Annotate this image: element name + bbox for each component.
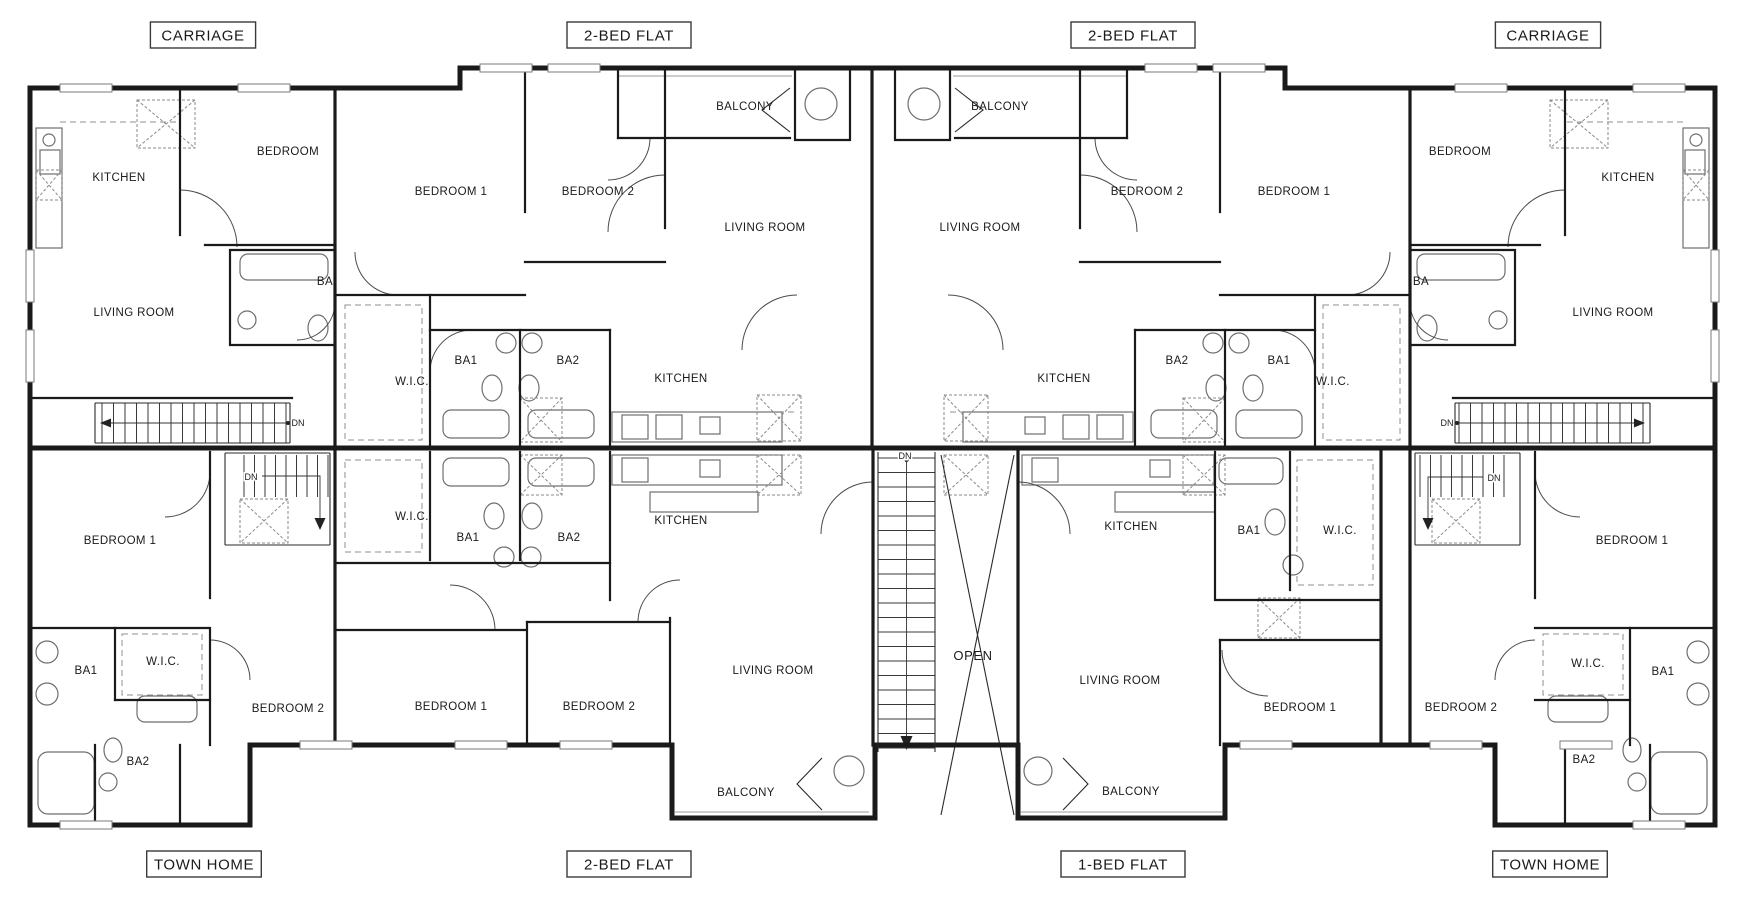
room-label: BALCONY [716,101,774,113]
unit-label: CARRIAGE [161,28,244,45]
room-label: LIVING ROOM [1079,675,1160,687]
dn-note: DN [245,472,258,482]
unit-label: TOWN HOME [154,857,254,874]
room-label: BEDROOM 1 [415,186,488,198]
room-label: BEDROOM 1 [1264,702,1337,714]
room-label: BALCONY [1102,786,1160,798]
room-label: BA [317,276,333,288]
unit-label: TOWN HOME [1500,857,1600,874]
room-label: KITCHEN [1104,521,1157,533]
room-label: BEDROOM 2 [563,701,636,713]
room-label: BA1 [1268,355,1291,367]
room-label: BEDROOM 1 [1258,186,1331,198]
room-label: W.I.C. [1571,658,1605,670]
room-label: W.I.C. [146,656,180,668]
dn-note: DN [1441,418,1454,428]
room-label: KITCHEN [654,373,707,385]
room-label: BALCONY [971,101,1029,113]
room-label: BA2 [1166,355,1189,367]
room-label: BA1 [1238,525,1261,537]
shaft-x [240,499,288,543]
room-label: BA [1413,276,1429,288]
shaft-x [137,100,195,148]
shaft-x [1258,598,1300,638]
room-label: BEDROOM 2 [1111,186,1184,198]
room-label: BEDROOM 2 [1425,702,1498,714]
unit-label: CARRIAGE [1506,28,1589,45]
room-label: BEDROOM 1 [415,701,488,713]
room-label: BEDROOM 1 [84,535,157,547]
room-label: BA1 [457,532,480,544]
room-label: W.I.C. [395,376,429,388]
room-label: LIVING ROOM [1572,307,1653,319]
room-label: BEDROOM [1429,146,1491,158]
room-label: KITCHEN [654,515,707,527]
room-label: BA1 [1652,666,1675,678]
room-label: W.I.C. [1323,525,1357,537]
unit-label: 2-BED FLAT [584,28,674,45]
room-label: BA1 [455,355,478,367]
room-label: BEDROOM 2 [252,703,325,715]
room-label: BALCONY [717,787,775,799]
floor-plan-svg: KITCHENBEDROOMBALIVING ROOMBEDROOM 1BEDR… [0,0,1745,897]
room-label: LIVING ROOM [939,222,1020,234]
dn-note: DN [899,451,912,461]
floor-plan: KITCHENBEDROOMBALIVING ROOMBEDROOM 1BEDR… [0,0,1745,897]
room-label: LIVING ROOM [724,222,805,234]
room-label: W.I.C. [395,511,429,523]
room-label: W.I.C. [1316,376,1350,388]
unit-label: 2-BED FLAT [1088,28,1178,45]
room-label: LIVING ROOM [93,307,174,319]
open-to-below-label: OPEN [953,648,992,663]
shaft-x [1432,499,1480,543]
room-label: BEDROOM 1 [1596,535,1669,547]
room-label: BA2 [558,532,581,544]
room-label: LIVING ROOM [732,665,813,677]
unit-label: 2-BED FLAT [584,857,674,874]
dn-note: DN [292,418,305,428]
room-label: BA2 [1573,754,1596,766]
shaft-box [1258,598,1300,638]
open-brace [941,455,1014,815]
room-label: BA2 [557,355,580,367]
unit-label: 1-BED FLAT [1078,857,1168,874]
room-label: KITCHEN [1037,373,1090,385]
shaft-x [1550,100,1608,148]
room-label: BA1 [75,665,98,677]
dn-note: DN [1488,473,1501,483]
room-label: BA2 [127,756,150,768]
room-label: KITCHEN [92,172,145,184]
room-label: BEDROOM 2 [562,186,635,198]
shaft-x [944,455,988,495]
room-label: KITCHEN [1601,172,1654,184]
room-label: BEDROOM [257,146,319,158]
